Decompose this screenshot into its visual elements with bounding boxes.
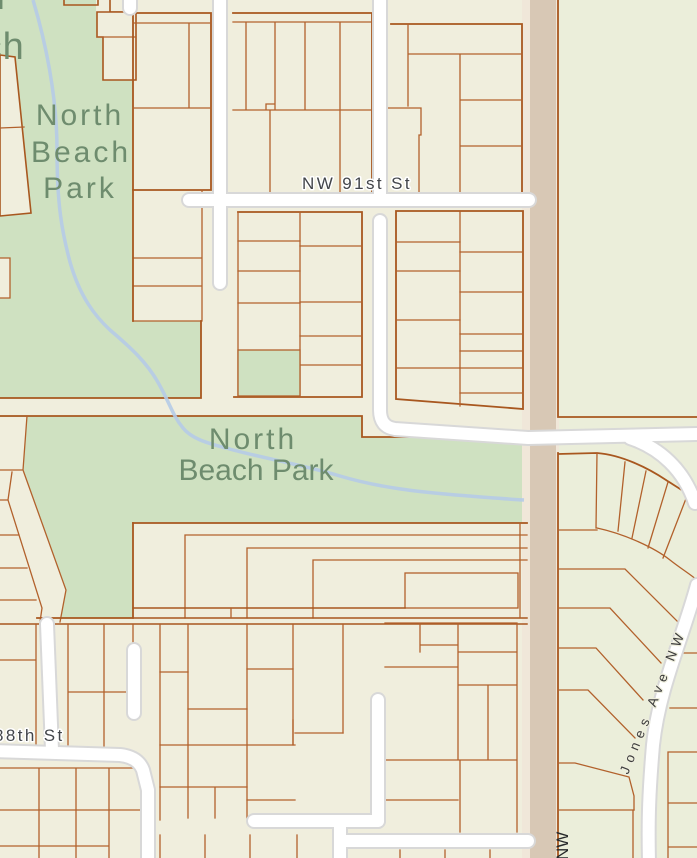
svg-text:North: North bbox=[36, 99, 124, 132]
svg-text:NW: NW bbox=[553, 832, 572, 858]
svg-text:North: North bbox=[0, 0, 6, 18]
svg-text:NW 91st St: NW 91st St bbox=[302, 174, 412, 193]
svg-text:Park: Park bbox=[43, 172, 117, 205]
svg-text:Beach: Beach bbox=[0, 26, 25, 68]
svg-text:88th St: 88th St bbox=[0, 726, 65, 745]
svg-text:Beach: Beach bbox=[31, 136, 131, 169]
svg-text:Beach Park: Beach Park bbox=[178, 454, 334, 487]
svg-text:North: North bbox=[209, 423, 297, 456]
